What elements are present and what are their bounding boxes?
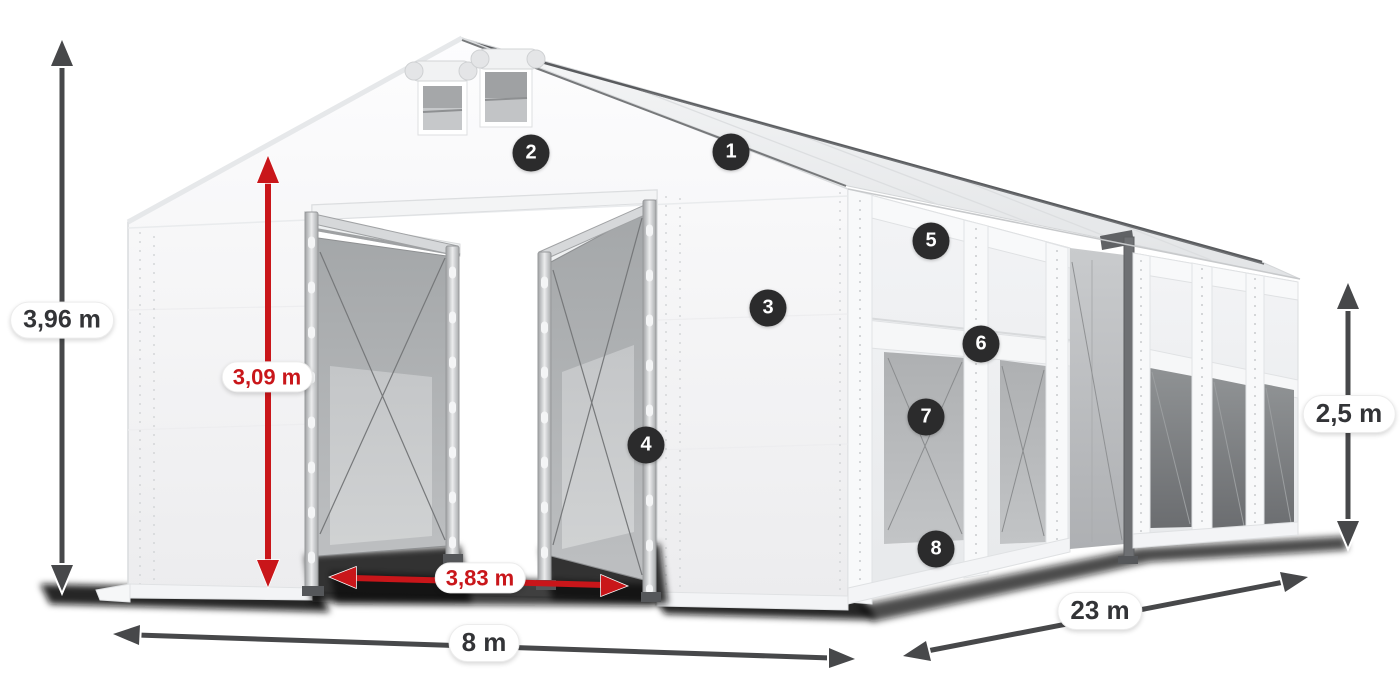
part-marker-4: 4 xyxy=(628,427,665,464)
gable-width-head-right xyxy=(829,648,855,668)
part-marker-6: 6 xyxy=(963,326,1000,363)
part-marker-5: 5 xyxy=(913,223,950,260)
label-entrance-width: 3,83 m xyxy=(435,562,526,593)
gable-window-left xyxy=(418,81,467,135)
part-marker-7: 7 xyxy=(908,399,945,436)
part-marker-8: 8 xyxy=(918,531,955,568)
side-open-gap xyxy=(1070,248,1125,549)
gable-width-head-left xyxy=(113,625,140,645)
label-total-height: 3,96 m xyxy=(10,302,114,339)
roll-up-tube-right xyxy=(471,49,545,69)
part-marker-1: 1 xyxy=(713,134,750,171)
entrance-door-left xyxy=(302,212,463,596)
tent-illustration xyxy=(0,0,1400,700)
tent-diagram: 3,96 m 3,09 m 3,83 m 8 m 23 m 2,5 m 1 2 … xyxy=(0,0,1400,700)
side-strap-3 xyxy=(1046,242,1068,556)
gap-pole-foot xyxy=(1118,556,1138,564)
front-entrance xyxy=(302,190,668,606)
gable-window-right xyxy=(480,67,532,127)
tube-right-cap-a xyxy=(471,50,489,68)
gable-window-right-mesh xyxy=(485,72,527,98)
tube-left-cap-a xyxy=(405,62,423,80)
length-head-left xyxy=(903,641,931,661)
label-sidewall-height: 2,5 m xyxy=(1303,395,1396,433)
gable-window-left-mesh xyxy=(423,86,462,108)
roll-up-tube-left xyxy=(405,61,477,81)
door-left-foot-a xyxy=(302,586,324,596)
entrance-door-right xyxy=(536,200,661,602)
part-marker-3: 3 xyxy=(750,290,787,327)
part-marker-2: 2 xyxy=(513,135,550,172)
tube-right-cap-b xyxy=(527,50,545,68)
door-right-foot-b xyxy=(641,592,661,602)
label-length: 23 m xyxy=(1057,592,1142,630)
sidewall-height-head-top xyxy=(1337,283,1359,309)
length-head-right xyxy=(1280,572,1308,592)
label-gable-width: 8 m xyxy=(449,624,520,662)
label-entrance-height: 3,09 m xyxy=(222,361,313,392)
total-height-head-top xyxy=(51,40,73,66)
door-left-pole-a xyxy=(305,212,318,592)
side-strap-corner xyxy=(848,189,872,604)
door-right-window xyxy=(562,345,634,549)
